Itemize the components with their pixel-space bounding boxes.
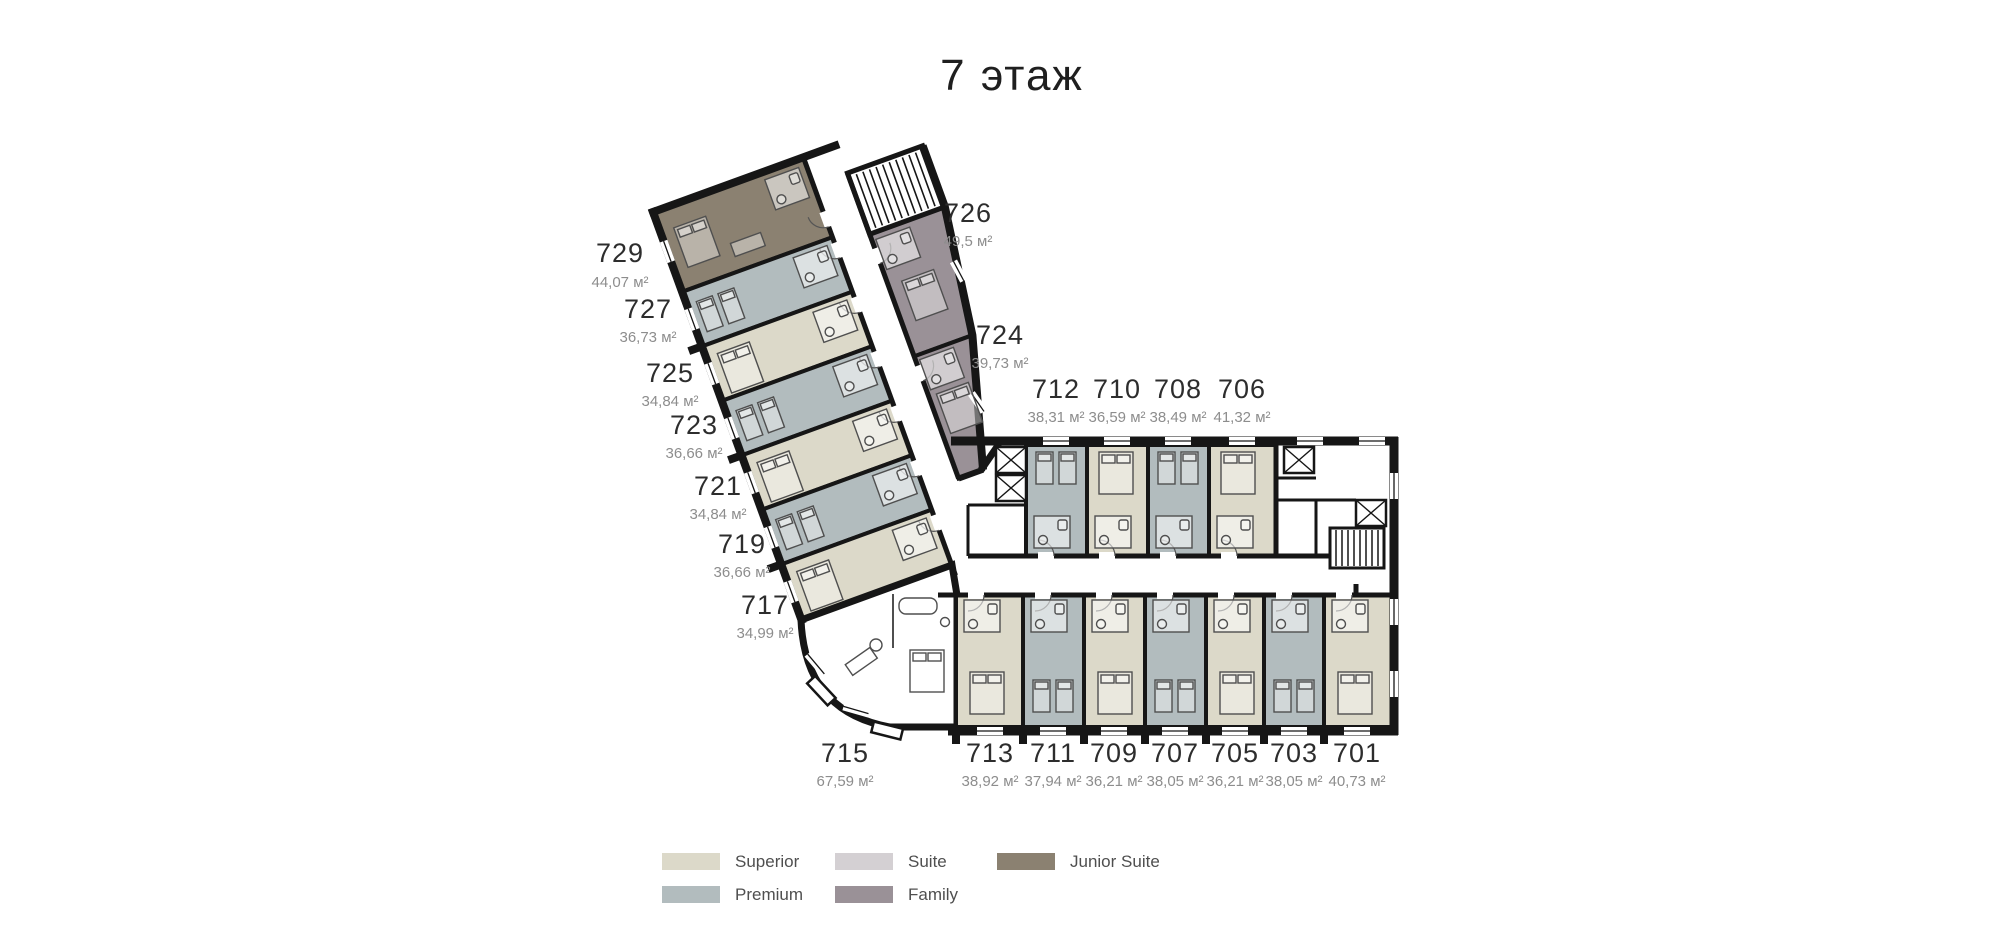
room-717-area: 34,99 м² bbox=[736, 625, 793, 642]
stairs-right bbox=[1330, 528, 1384, 568]
room-713-label: 713 bbox=[966, 738, 1014, 768]
room-712-label: 712 bbox=[1032, 374, 1080, 404]
room-725-area: 34,84 м² bbox=[641, 393, 698, 410]
room-726-area: 49,5 м² bbox=[944, 233, 993, 250]
room-709-area: 36,21 м² bbox=[1085, 773, 1142, 790]
room-729-area: 44,07 м² bbox=[591, 274, 648, 291]
room-703-label: 703 bbox=[1270, 738, 1318, 768]
room-707-area: 38,05 м² bbox=[1146, 773, 1203, 790]
room-723-area: 36,66 м² bbox=[665, 445, 722, 462]
room-708-area: 38,49 м² bbox=[1149, 409, 1206, 426]
room-712-area: 38,31 м² bbox=[1027, 409, 1084, 426]
legend-junior-suite-swatch bbox=[997, 853, 1055, 870]
room-701-label: 701 bbox=[1333, 738, 1381, 768]
room-717-label: 717 bbox=[741, 590, 789, 620]
room-709-label: 709 bbox=[1090, 738, 1138, 768]
room-723-label: 723 bbox=[670, 410, 718, 440]
legend-suite-swatch bbox=[835, 853, 893, 870]
room-729-label: 729 bbox=[596, 238, 644, 268]
room-711-area: 37,94 м² bbox=[1024, 773, 1081, 790]
room-715-label: 715 bbox=[821, 738, 869, 768]
room-705-area: 36,21 м² bbox=[1206, 773, 1263, 790]
room-725-label: 725 bbox=[646, 358, 694, 388]
room-713-area: 38,92 м² bbox=[961, 773, 1018, 790]
legend-family-label: Family bbox=[908, 885, 959, 904]
room-726-label: 726 bbox=[944, 198, 992, 228]
room-727-area: 36,73 м² bbox=[619, 329, 676, 346]
legend-premium-label: Premium bbox=[735, 885, 803, 904]
room-715-area: 67,59 м² bbox=[816, 773, 873, 790]
room-727-label: 727 bbox=[624, 294, 672, 324]
room-719-area: 36,66 м² bbox=[713, 564, 770, 581]
legend-junior-suite-label: Junior Suite bbox=[1070, 852, 1160, 871]
room-707-label: 707 bbox=[1151, 738, 1199, 768]
room-724-label: 724 bbox=[976, 320, 1024, 350]
legend-premium-swatch bbox=[662, 886, 720, 903]
horizontal-wing bbox=[938, 437, 1398, 744]
room-710-area: 36,59 м² bbox=[1088, 409, 1145, 426]
legend-superior-swatch bbox=[662, 853, 720, 870]
room-721-area: 34,84 м² bbox=[689, 506, 746, 523]
room-708-label: 708 bbox=[1154, 374, 1202, 404]
room-724-area: 39,73 м² bbox=[971, 355, 1028, 372]
room-711-label: 711 bbox=[1030, 738, 1076, 768]
legend-family-swatch bbox=[835, 886, 893, 903]
floor-plan-canvas: 7 этаж bbox=[0, 0, 2001, 927]
room-703-area: 38,05 м² bbox=[1265, 773, 1322, 790]
room-710-label: 710 bbox=[1093, 374, 1141, 404]
room-701-area: 40,73 м² bbox=[1328, 773, 1385, 790]
room-719-label: 719 bbox=[718, 529, 766, 559]
room-705-label: 705 bbox=[1211, 738, 1259, 768]
legend-suite-label: Suite bbox=[908, 852, 947, 871]
corridor bbox=[938, 556, 1392, 595]
room-706-area: 41,32 м² bbox=[1213, 409, 1270, 426]
room-715-furniture bbox=[805, 594, 950, 739]
page-title: 7 этаж bbox=[940, 51, 1084, 100]
service-block-right bbox=[1276, 447, 1386, 568]
room-721-label: 721 bbox=[694, 471, 742, 501]
legend: Superior Premium Suite Family Junior Sui… bbox=[662, 852, 1160, 904]
room-706-label: 706 bbox=[1218, 374, 1266, 404]
legend-superior-label: Superior bbox=[735, 852, 800, 871]
